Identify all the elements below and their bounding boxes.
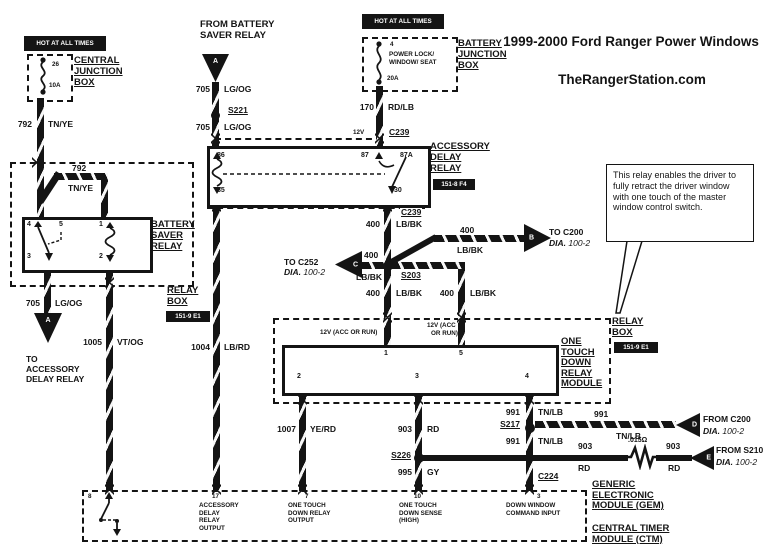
wire-400-to-pin5 <box>458 262 465 345</box>
wire-991-to-c200 <box>535 421 676 428</box>
wire-705-pin3-number: 705 <box>16 299 40 309</box>
wire-903-color: RD <box>427 425 439 435</box>
offpage-connector-d: D <box>676 413 700 437</box>
to-c200-label: TO C200 <box>549 228 583 238</box>
wire-400-to-c200 <box>434 235 524 242</box>
relay-box-left-grid-ref: 151-9 E1 <box>166 311 210 322</box>
to-accessory-delay-relay-label: TO ACCESSORY DELAY RELAY <box>26 354 84 384</box>
wire-400-pin5-color: LB/BK <box>470 289 496 299</box>
wire-792-branch-color: TN/YE <box>68 184 93 194</box>
wire-1005-color: VT/OG <box>117 338 143 348</box>
splice-s217-dot <box>525 423 535 433</box>
wire-991-number: 991 <box>496 408 520 418</box>
12v-label: 12V <box>352 129 365 137</box>
wire-705-pin3-color: LG/OG <box>55 299 82 309</box>
cjb-fuse-rating: 10A <box>49 82 61 90</box>
wire-995-color: GY <box>427 468 439 478</box>
splice-s226-dot <box>414 453 424 463</box>
relay-box-right-label: RELAY BOX <box>612 316 643 338</box>
connector-c239-label-top: C239 <box>388 128 410 138</box>
gem-pin-10-label: ONE TOUCH DOWN SENSE (HIGH) <box>399 502 442 525</box>
splice-s217-label: S217 <box>492 420 520 430</box>
otdm-pin-2: 2 <box>297 373 301 381</box>
wire-170-color: RD/LB <box>388 103 414 113</box>
wire-400-number: 400 <box>358 220 380 230</box>
wire-903-to-s210 <box>656 455 692 461</box>
bjb-fuse-number: 4 <box>390 41 394 49</box>
splice-s203-label: S203 <box>400 271 422 281</box>
gem-label: GENERIC ELECTRONIC MODULE (GEM) <box>592 480 664 512</box>
splice-s221-label: S221 <box>228 106 248 116</box>
wire-705-number: 705 <box>186 123 210 133</box>
page-title: 1999-2000 Ford Ranger Power Windows <box>500 34 762 49</box>
fuse-icon <box>372 40 386 86</box>
connector-c-letter: C <box>353 261 358 268</box>
splice-s221-dot <box>211 111 220 120</box>
splice-s226-label: S226 <box>383 451 411 461</box>
otdm-12v-label-right-2: OR RUN) <box>431 330 458 338</box>
otdm-12v-label-left: 12V (ACC OR RUN) <box>320 329 377 337</box>
cjb-fuse-number: 26 <box>52 61 59 69</box>
hot-at-all-times-banner-right: HOT AT ALL TIMES <box>362 14 444 29</box>
bjb-fuse-desc-1: POWER LOCK/ <box>389 51 434 59</box>
wire-991-number-2: 991 <box>496 437 520 447</box>
hot-at-all-times-banner-left: HOT AT ALL TIMES <box>24 36 106 51</box>
bjb-fuse-desc-2: WINDOW/ SEAT <box>389 59 436 67</box>
gem-pin-17-label: ACCESSORY DELAY RELAY OUTPUT <box>199 502 239 532</box>
gem-pin-3-label: DOWN WINDOW COMMAND INPUT <box>506 502 560 517</box>
wire-400-pin5-number: 400 <box>432 289 454 299</box>
wire-1007 <box>299 390 306 491</box>
offpage-connector-a-bottom: A <box>34 313 62 343</box>
note-box: This relay enables the driver to fully r… <box>606 164 754 242</box>
adr-grid-ref: 151-8 F4 <box>433 179 475 190</box>
connector-c239-label-bottom: C239 <box>400 208 422 218</box>
wire-792-number: 792 <box>4 120 32 130</box>
connector-c224-label: C224 <box>538 472 558 482</box>
wire-705-number: 705 <box>186 85 210 95</box>
wire-792-color: TN/YE <box>48 120 73 130</box>
wire-400-pin1-number: 400 <box>358 289 380 299</box>
to-c252-dia: DIA. 100-2 <box>284 268 325 278</box>
gem-pin-8: 8 <box>88 493 92 501</box>
wire-792-branch-number: 792 <box>72 164 86 174</box>
offpage-connector-b: B <box>524 224 551 252</box>
cjb-label: CENTRAL JUNCTION BOX <box>74 55 123 88</box>
gem-pin-3: 3 <box>537 493 541 501</box>
wire-400-pin1-color: LB/BK <box>396 289 422 299</box>
connector-a-letter: A <box>45 317 50 324</box>
from-battery-saver-relay-label: FROM BATTERY SAVER RELAY <box>200 19 274 41</box>
site-title: TheRangerStation.com <box>522 72 742 87</box>
from-c200-label: FROM C200 <box>703 415 751 425</box>
connector-d-letter: D <box>692 422 697 429</box>
adr-label: ACCESSORY DELAY RELAY <box>430 141 490 174</box>
wire-400-c200-number: 400 <box>460 226 474 236</box>
wire-903-number: 903 <box>388 425 412 435</box>
ctm-label: CENTRAL TIMER MODULE (CTM) <box>592 524 669 545</box>
relay-box-right-grid-ref: 151-9 E1 <box>614 342 658 353</box>
connector-a-letter: A <box>213 58 218 65</box>
otdm-pin-1: 1 <box>384 350 388 358</box>
wire-400-c252-color: LB/BK <box>356 273 382 283</box>
one-touch-down-relay-module-box <box>282 345 559 396</box>
wire-170-number: 170 <box>350 103 374 113</box>
from-c200-dia: DIA. 100-2 <box>703 427 744 437</box>
wire-400-c200-color: LB/BK <box>457 246 483 256</box>
wire-1004-number: 1004 <box>184 343 210 353</box>
fuse-icon <box>36 56 50 96</box>
wire-903-995 <box>415 390 422 491</box>
wire-991-color-2: TN/LB <box>538 437 563 447</box>
gem-pin-7: 7 <box>305 493 309 501</box>
otdm-12v-label-right-1: 12V (ACC <box>427 322 456 330</box>
wire-400-c252-number: 400 <box>364 251 378 261</box>
otdm-pin-4: 4 <box>525 373 529 381</box>
gem-pin-7-label: ONE TOUCH DOWN RELAY OUTPUT <box>288 502 330 525</box>
wire-1005 <box>106 267 113 491</box>
connector-e-letter: E <box>706 455 711 462</box>
connector-b-letter: B <box>529 235 534 242</box>
from-s210-dia: DIA. 100-2 <box>716 458 757 468</box>
wire-903-e2-number: 903 <box>666 442 680 452</box>
resistor-icon <box>626 444 658 470</box>
otdm-pin-3: 3 <box>415 373 419 381</box>
note-callout-pointer <box>609 241 649 317</box>
wire-792-branch-horizontal <box>54 173 108 180</box>
wire-1005-number: 1005 <box>74 338 102 348</box>
gem-pin-17: 17 <box>212 493 219 501</box>
wire-1004-color: LB/RD <box>224 343 250 353</box>
wire-705-pin3 <box>44 267 51 313</box>
to-c200-dia: DIA. 100-2 <box>549 239 590 249</box>
gem-switch-icon <box>94 491 128 537</box>
relay-box-left-label: RELAY BOX <box>167 285 198 307</box>
otdm-pin-5: 5 <box>459 350 463 358</box>
offpage-connector-e: E <box>690 446 714 470</box>
wire-991-d-number: 991 <box>594 410 608 420</box>
wire-995-number: 995 <box>388 468 412 478</box>
wire-991-color: TN/LB <box>538 408 563 418</box>
wire-991 <box>526 390 533 491</box>
wire-903-e-color: RD <box>578 464 590 474</box>
wire-903-from-s226 <box>422 455 628 461</box>
connector-c239-top-line <box>215 138 382 140</box>
wire-400-color: LB/BK <box>396 220 422 230</box>
central-junction-box-outline <box>27 54 73 102</box>
from-s210-label: FROM S210 <box>716 446 763 456</box>
wire-705-color: LG/OG <box>224 85 251 95</box>
wire-1007-number: 1007 <box>268 425 296 435</box>
wire-400-to-pin1 <box>384 267 391 345</box>
wire-1007-color: YE/RD <box>310 425 336 435</box>
wire-792-diagonal <box>32 170 62 206</box>
wire-903-e2-color: RD <box>668 464 680 474</box>
wire-903-e-number: 903 <box>578 442 592 452</box>
wire-1004 <box>213 202 220 490</box>
splice-s203-dot <box>383 261 393 271</box>
gem-pin-10: 10 <box>414 493 421 501</box>
otdm-label: ONE TOUCH DOWN RELAY MODULE <box>561 337 602 390</box>
adr-internals-icon <box>209 149 423 199</box>
wiring-diagram-canvas: HOT AT ALL TIMES HOT AT ALL TIMES 26 10A… <box>0 0 768 555</box>
bsr-internals-icon <box>24 220 145 264</box>
offpage-connector-a-top: A <box>202 54 229 82</box>
bjb-fuse-rating: 20A <box>387 75 399 83</box>
wire-705-color: LG/OG <box>224 123 251 133</box>
bsr-label: BATTERY SAVER RELAY <box>151 219 195 252</box>
